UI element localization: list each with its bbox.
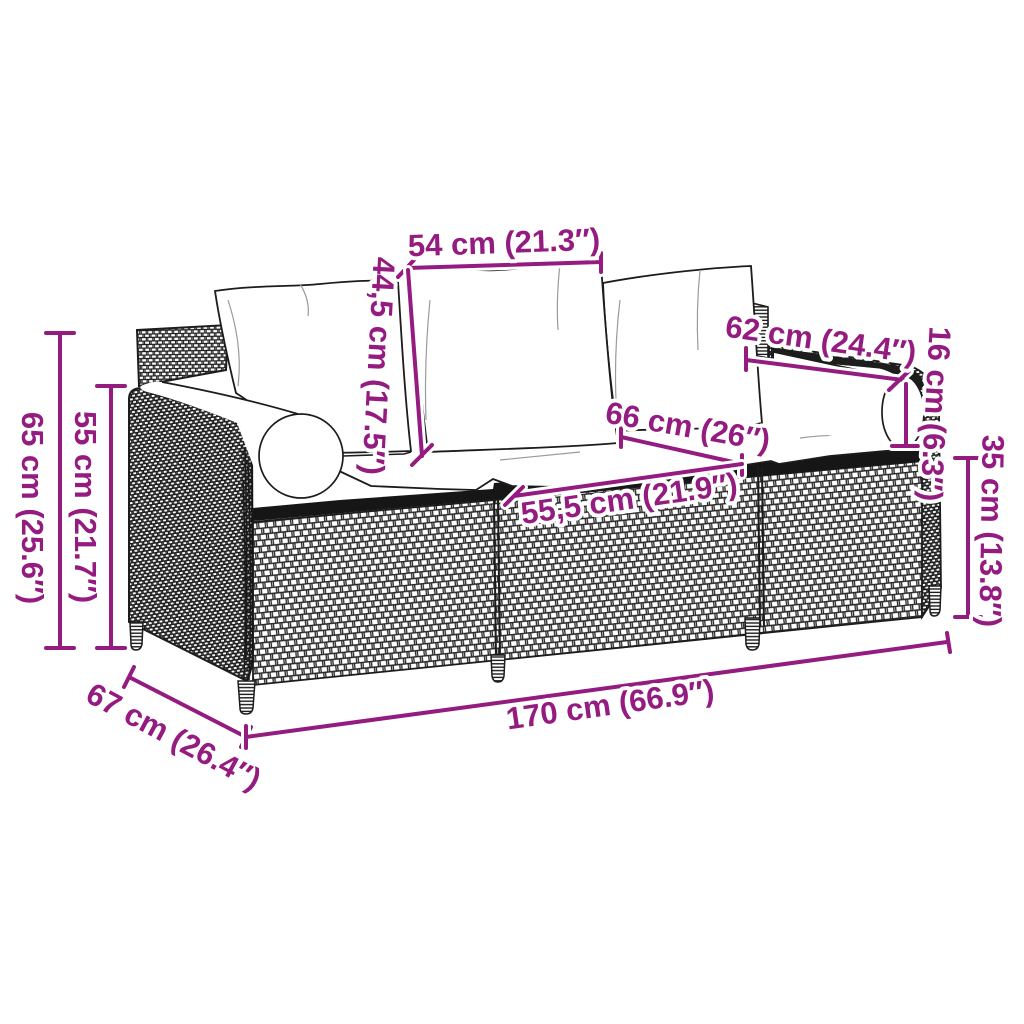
svg-text:35 cm (13.8″): 35 cm (13.8″) [972,435,1010,628]
svg-text:54 cm (21.3″): 54 cm (21.3″) [407,222,600,264]
svg-text:55 cm (21.7″): 55 cm (21.7″) [68,411,103,603]
svg-text:65 cm (25.6″): 65 cm (25.6″) [15,412,50,604]
